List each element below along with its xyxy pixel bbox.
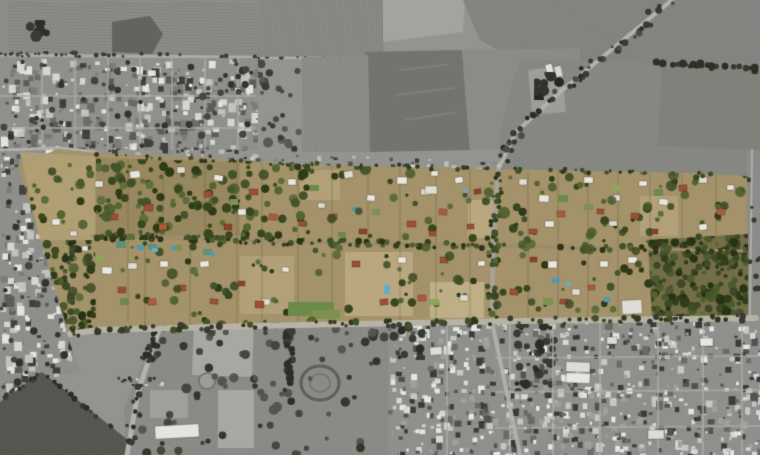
satellite-view [0,0,760,455]
screenshot-root [0,0,760,455]
satellite-imagery-canvas [0,0,760,455]
